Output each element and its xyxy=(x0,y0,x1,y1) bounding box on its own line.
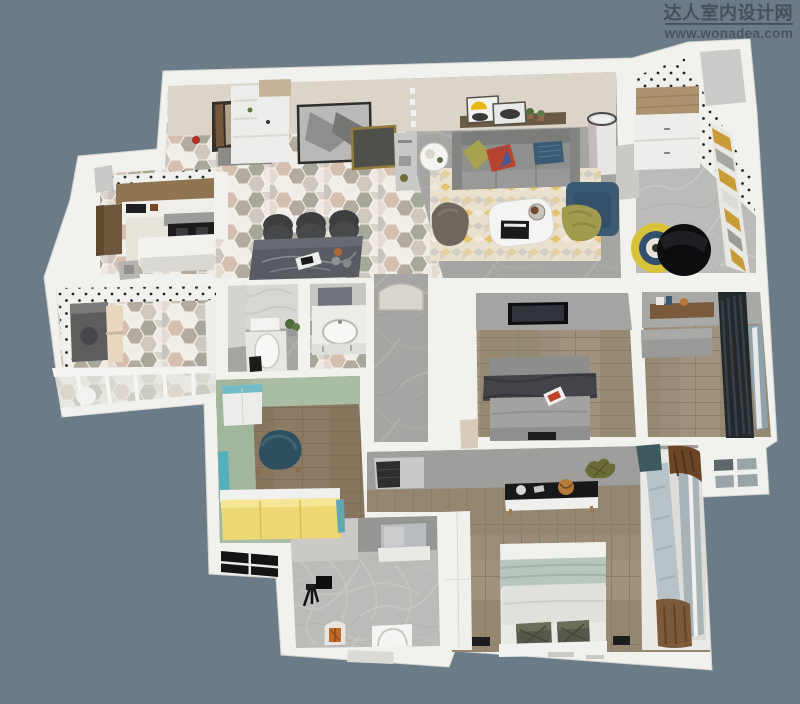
svg-text:达人室内设计网: 达人室内设计网 xyxy=(664,2,794,23)
svg-text:www.wonadea.com: www.wonadea.com xyxy=(663,26,793,41)
